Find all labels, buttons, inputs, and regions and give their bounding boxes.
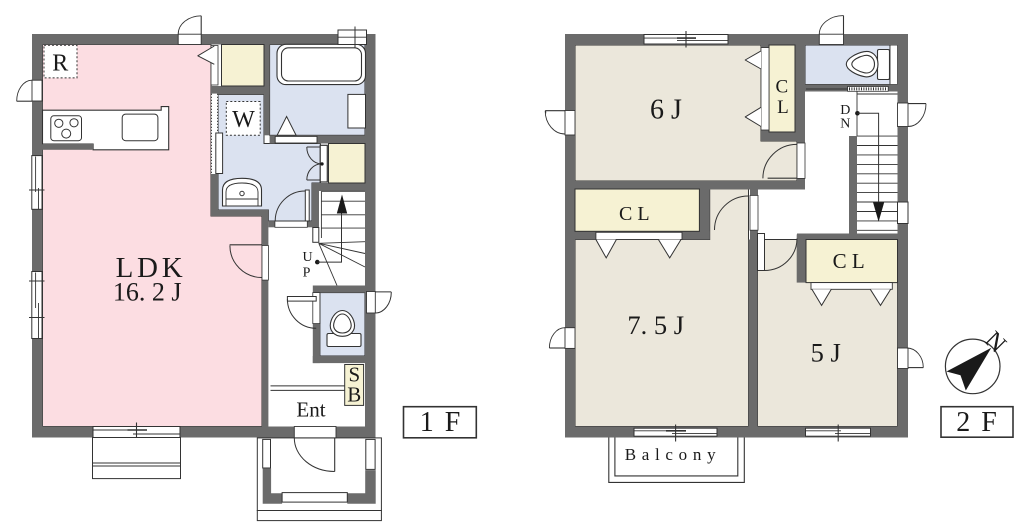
svg-text:W: W <box>232 107 255 133</box>
svg-text:P: P <box>303 265 311 280</box>
svg-text:5 J: 5 J <box>811 338 841 368</box>
svg-text:C L: C L <box>619 203 650 225</box>
svg-text:C L: C L <box>833 249 865 273</box>
svg-text:R: R <box>52 50 68 76</box>
svg-text:U: U <box>302 250 312 265</box>
svg-text:16. 2 J: 16. 2 J <box>113 277 182 306</box>
svg-text:Ent: Ent <box>296 398 325 422</box>
svg-text:B: B <box>347 383 361 407</box>
svg-text:6 J: 6 J <box>650 95 682 126</box>
svg-text:L: L <box>777 97 789 118</box>
svg-text:C: C <box>775 77 788 98</box>
svg-text:N: N <box>840 116 850 131</box>
svg-text:7. 5 J: 7. 5 J <box>627 310 684 340</box>
svg-text:Balcony: Balcony <box>625 445 722 464</box>
svg-text:1 F: 1 F <box>420 407 463 438</box>
svg-text:2 F: 2 F <box>956 407 999 438</box>
